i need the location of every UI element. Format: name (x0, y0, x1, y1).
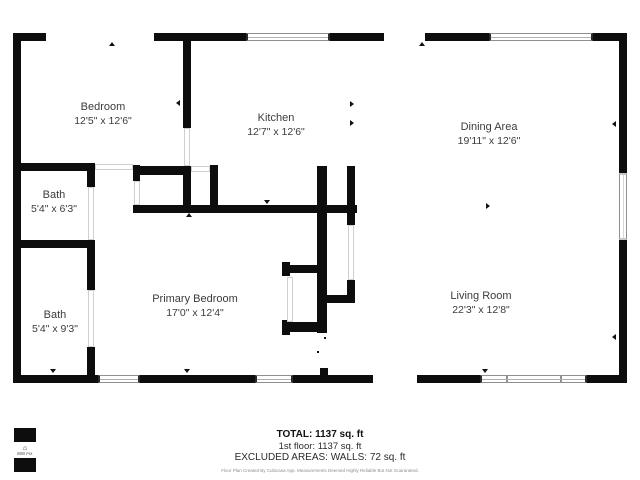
window-bottom-primary-1 (98, 375, 140, 383)
door-marker-icon (324, 337, 326, 339)
sliding-door-divider (560, 376, 562, 382)
wall-top-2 (154, 33, 247, 41)
room-name: Primary Bedroom (115, 292, 275, 306)
room-label-bath-1: Bath 5'4" x 6'3" (4, 188, 104, 216)
door-marker-icon (317, 351, 319, 353)
window-top-bedroom (246, 33, 330, 41)
logo-brand-text: PIX (17, 452, 32, 456)
wall-bottom-5 (587, 375, 627, 383)
room-dimensions: 22'3" x 12'8" (401, 303, 561, 317)
wall-bottom-4 (417, 375, 480, 383)
wall-primary-east (317, 166, 327, 333)
wall-closet-vert-top (347, 166, 355, 225)
room-dimensions: 17'0" x 12'4" (115, 306, 275, 320)
door-marker-icon (264, 200, 270, 204)
door-closet-top (191, 166, 210, 172)
door-marker-icon (612, 121, 616, 127)
logo-top-block (14, 428, 36, 442)
window-sliding-door (480, 375, 587, 383)
door-marker-icon (186, 213, 192, 217)
wall-bath2-right-lower (87, 347, 95, 375)
logo-gray-mark (17, 452, 25, 455)
door-marker-icon (482, 369, 488, 373)
wall-bath-divider (21, 240, 93, 248)
door-living-closet (348, 225, 354, 280)
door-bedroom (184, 128, 190, 166)
room-dimensions: 5'4" x 9'3" (5, 322, 105, 336)
room-dimensions: 5'4" x 6'3" (4, 202, 104, 216)
door-marker-icon (612, 334, 616, 340)
room-name: Bath (4, 188, 104, 202)
area-summary: TOTAL: 1137 sq. ft 1st floor: 1137 sq. f… (0, 429, 640, 474)
wall-right-lower (619, 240, 627, 383)
room-label-primary-bedroom: Primary Bedroom 17'0" x 12'4" (115, 292, 275, 320)
wall-bottom-2 (140, 375, 255, 383)
wall-hall-upper-cap (133, 165, 140, 181)
window-top-dining (489, 33, 593, 41)
wall-bath1-cap (87, 163, 95, 187)
door-marker-icon (486, 203, 490, 209)
logo-bottom-block (14, 458, 36, 472)
room-dimensions: 12'7" x 12'6" (206, 125, 346, 139)
door-primary-closet (287, 277, 293, 322)
floor-plan-canvas: Bedroom 12'5" x 12'6" Kitchen 12'7" x 12… (0, 0, 640, 480)
wall-bedroom-kitchen (183, 41, 191, 128)
first-floor-area-text: 1st floor: 1137 sq. ft (0, 441, 640, 452)
door-marker-icon (109, 42, 115, 46)
room-label-kitchen: Kitchen 12'7" x 12'6" (206, 111, 346, 139)
wall-primary-closet-bottom-cap (282, 320, 290, 335)
door-marker-icon (350, 101, 354, 107)
wall-right-upper (619, 33, 627, 173)
door-marker-icon (50, 369, 56, 373)
logo-middle: ⌂ PIX (14, 442, 36, 458)
wall-bottom-3 (293, 375, 373, 383)
wall-door-jamb (320, 368, 328, 376)
brand-logo: ⌂ PIX (14, 428, 36, 472)
room-label-bedroom: Bedroom 12'5" x 12'6" (33, 100, 173, 128)
room-name: Bath (5, 308, 105, 322)
door-hall-opening (95, 164, 133, 170)
excluded-areas-text: EXCLUDED AREAS: WALLS: 72 sq. ft (0, 452, 640, 464)
sliding-door-divider (506, 376, 508, 382)
room-name: Dining Area (419, 120, 559, 134)
room-name: Bedroom (33, 100, 173, 114)
window-bottom-primary-2 (255, 375, 293, 383)
window-right-dining (619, 173, 627, 240)
room-dimensions: 19'11" x 12'6" (419, 134, 559, 148)
door-marker-icon (350, 120, 354, 126)
wall-bath2-right-upper (87, 240, 95, 290)
wall-top-3 (330, 33, 384, 41)
room-label-bath-2: Bath 5'4" x 9'3" (5, 308, 105, 336)
room-name: Kitchen (206, 111, 346, 125)
room-name: Living Room (401, 289, 561, 303)
door-marker-icon (176, 100, 180, 106)
total-area-text: TOTAL: 1137 sq. ft (0, 429, 640, 441)
wall-closet-horizontal (322, 295, 355, 303)
room-label-dining-area: Dining Area 19'11" x 12'6" (419, 120, 559, 148)
room-dimensions: 12'5" x 12'6" (33, 114, 173, 128)
wall-top-4 (425, 33, 490, 41)
wall-bottom-1 (13, 375, 98, 383)
wall-bath1-top (21, 163, 95, 171)
disclaimer-text: Floor Plan Created By Cubicasa App. Meas… (0, 468, 640, 474)
house-icon: ⌂ (23, 445, 27, 452)
room-label-living-room: Living Room 22'3" x 12'8" (401, 289, 561, 317)
door-marker-icon (184, 369, 190, 373)
wall-primary-closet-top-cap (282, 262, 290, 276)
logo-text: PIX (26, 452, 32, 456)
door-closet-front (134, 181, 140, 205)
door-marker-icon (419, 42, 425, 46)
